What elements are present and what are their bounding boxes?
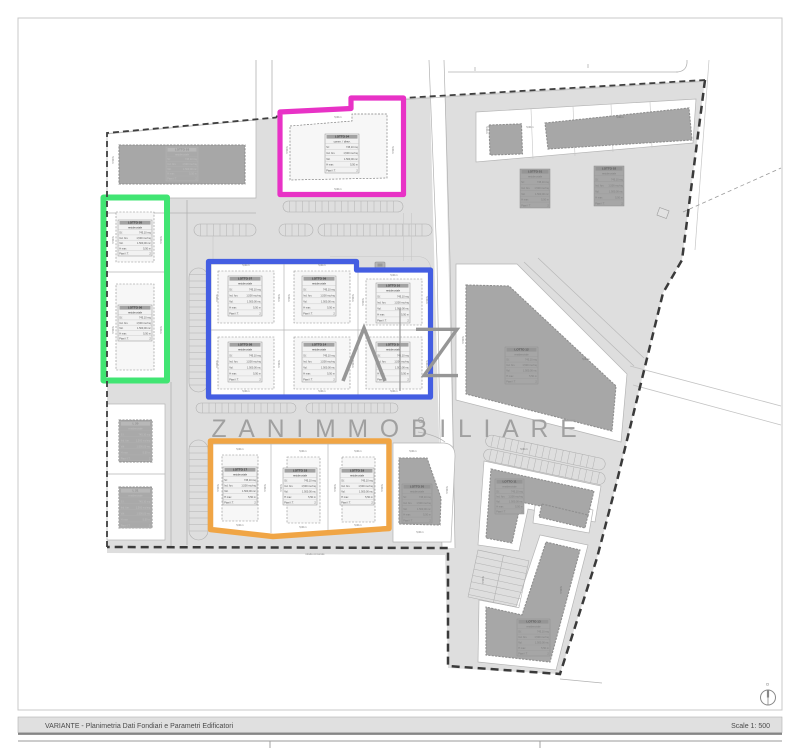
svg-text:Piani f.T.: Piani f.T. [303, 313, 313, 316]
svg-text:1.500,00 mc: 1.500,00 mc [242, 490, 257, 493]
svg-text:residenziale: residenziale [128, 310, 143, 314]
svg-text:Piani f.T.: Piani f.T. [377, 320, 387, 323]
svg-text:Vol.: Vol. [595, 190, 599, 193]
svg-text:Piani f.T.: Piani f.T. [303, 379, 313, 382]
svg-text:Piani f.T.: Piani f.T. [496, 511, 506, 514]
svg-text:S.f.: S.f. [595, 178, 599, 181]
svg-text:S.f.: S.f. [224, 479, 228, 482]
svg-text:LOTTO 01: LOTTO 01 [528, 170, 543, 174]
svg-text:Ind. fon.: Ind. fon. [284, 485, 293, 488]
svg-text:1.500,00 mc: 1.500,00 mc [137, 445, 152, 448]
svg-text:LOTTO 20: LOTTO 20 [410, 485, 425, 489]
svg-text:Piani f.T.: Piani f.T. [326, 170, 336, 173]
svg-text:H max: H max [303, 373, 311, 376]
svg-text:5,50 m: 5,50 m [143, 247, 151, 250]
svg-text:LOTTO 09: LOTTO 09 [312, 277, 327, 281]
svg-text:5,50 m: 5,50 m [253, 307, 261, 310]
svg-text:1,500 mc/mq: 1,500 mc/mq [246, 294, 261, 297]
svg-text:5,00 m: 5,00 m [279, 484, 282, 491]
svg-text:1.500,00 mc: 1.500,00 mc [609, 190, 624, 193]
svg-text:S.f.: S.f. [518, 631, 522, 634]
svg-text:745,10 mq: 745,10 mq [323, 354, 335, 357]
svg-text:1,500 mc/mq: 1,500 mc/mq [534, 636, 549, 639]
svg-text:residenziale: residenziale [386, 288, 401, 292]
svg-text:LOTTO 16: LOTTO 16 [386, 343, 401, 347]
svg-text:residenziale: residenziale [233, 472, 248, 476]
svg-text:residenziale: residenziale [238, 347, 253, 351]
svg-text:1,500 mc/mq: 1,500 mc/mq [522, 364, 537, 367]
svg-text:Vol.: Vol. [326, 158, 330, 161]
svg-text:5,00 m: 5,00 m [111, 156, 114, 163]
svg-text:5,00 m: 5,00 m [354, 524, 361, 527]
svg-text:1,500 mc/mq: 1,500 mc/mq [136, 322, 151, 325]
svg-text:5,00 m: 5,00 m [242, 390, 249, 393]
svg-text:H max: H max [284, 496, 292, 499]
svg-text:Ind. fon.: Ind. fon. [224, 485, 233, 488]
svg-text:5,00 m: 5,00 m [485, 126, 488, 133]
svg-text:745,10 mq: 745,10 mq [249, 354, 261, 357]
svg-text:S.f.: S.f. [167, 158, 171, 161]
svg-text:5,50 m: 5,50 m [308, 496, 316, 499]
svg-text:S.f.: S.f. [341, 480, 345, 483]
svg-text:1,500 mc/mq: 1,500 mc/mq [416, 502, 431, 505]
svg-text:residenziale: residenziale [514, 352, 529, 356]
svg-text:H max: H max [167, 173, 175, 176]
svg-text:L 20: L 20 [133, 422, 139, 426]
svg-text:5,00 m: 5,00 m [277, 294, 280, 301]
svg-text:Vol.: Vol. [229, 300, 233, 303]
svg-text:1.500,00 mc: 1.500,00 mc [509, 500, 524, 503]
svg-text:1,500 mc/mq: 1,500 mc/mq [182, 163, 197, 166]
svg-text:residenziale: residenziale [528, 174, 543, 178]
svg-text:H max: H max [303, 307, 311, 310]
svg-text:Ind. fon.: Ind. fon. [496, 495, 505, 498]
svg-text:1.500,00 mc: 1.500,00 mc [523, 370, 538, 373]
svg-text:Piani f.T.: Piani f.T. [224, 502, 234, 505]
svg-text:Ind. fon.: Ind. fon. [229, 360, 238, 363]
svg-text:5,50 m: 5,50 m [401, 314, 409, 317]
svg-text:ZANIMMOBILIARE: ZANIMMOBILIARE [212, 415, 589, 443]
svg-text:1.500,00 mc: 1.500,00 mc [183, 168, 198, 171]
svg-text:5,00 m: 5,00 m [351, 294, 354, 301]
svg-text:S.f.: S.f. [496, 490, 500, 493]
svg-text:1,500 mc/mq: 1,500 mc/mq [136, 506, 151, 509]
svg-text:745,10 mq: 745,10 mq [346, 146, 358, 149]
svg-text:H max: H max [377, 314, 385, 317]
svg-text:LOTTO 19: LOTTO 19 [350, 469, 365, 473]
svg-text:LOTTO 18: LOTTO 18 [293, 469, 308, 473]
svg-text:Ind. fon.: Ind. fon. [119, 237, 128, 240]
svg-text:Ind. fon.: Ind. fon. [229, 294, 238, 297]
svg-text:5,50 m: 5,50 m [423, 514, 431, 517]
svg-text:5,00 m: 5,00 m [111, 236, 114, 243]
svg-text:S.f.: S.f. [377, 354, 381, 357]
svg-text:residenziale: residenziale [350, 473, 365, 477]
svg-text:Piani f.T.: Piani f.T. [521, 205, 531, 208]
svg-text:5,00 m: 5,00 m [159, 236, 162, 243]
svg-text:745,10 mq: 745,10 mq [525, 359, 537, 362]
svg-text:Piani f.T.: Piani f.T. [229, 379, 239, 382]
svg-text:1,500 mc/mq: 1,500 mc/mq [246, 360, 261, 363]
svg-text:Vol.: Vol. [224, 490, 228, 493]
svg-text:Vol.: Vol. [506, 370, 510, 373]
svg-text:745,10 mq: 745,10 mq [397, 295, 409, 298]
svg-text:LOTTO 17: LOTTO 17 [233, 468, 248, 472]
svg-text:LOTTO 14: LOTTO 14 [312, 343, 327, 347]
svg-text:5,50 m: 5,50 m [515, 506, 523, 509]
svg-text:1.500,00 mc: 1.500,00 mc [395, 366, 410, 369]
svg-text:5,00 m: 5,00 m [242, 264, 249, 267]
svg-text:L 21: L 21 [133, 489, 139, 493]
svg-text:1,500 mc/mq: 1,500 mc/mq [301, 485, 316, 488]
svg-text:5,00 m: 5,00 m [263, 484, 266, 491]
svg-text:1.500,00 mc: 1.500,00 mc [321, 366, 336, 369]
svg-text:5,00 m: 5,00 m [461, 336, 464, 343]
svg-text:1,500 mc/mq: 1,500 mc/mq [608, 184, 623, 187]
svg-text:1,500 mc/mq: 1,500 mc/mq [394, 360, 409, 363]
svg-text:5,50 m: 5,50 m [541, 647, 549, 650]
svg-text:5,50 m: 5,50 m [248, 496, 256, 499]
svg-text:residenziale: residenziale [175, 152, 190, 156]
svg-text:S.f.: S.f. [303, 354, 307, 357]
svg-text:5,00 m: 5,00 m [216, 484, 219, 491]
svg-text:1.500,00 mc: 1.500,00 mc [535, 193, 550, 196]
svg-text:5,00 m: 5,00 m [287, 294, 290, 301]
svg-text:5,50 m: 5,50 m [327, 373, 335, 376]
svg-text:residenziale: residenziale [526, 624, 541, 628]
svg-text:S.f.: S.f. [303, 288, 307, 291]
svg-text:Ind. fon.: Ind. fon. [167, 163, 176, 166]
svg-text:LOTTO 04: LOTTO 04 [335, 135, 350, 139]
svg-text:LOTTO 02: LOTTO 02 [602, 167, 617, 171]
svg-text:residenziale: residenziale [312, 281, 327, 285]
svg-text:5,00 m: 5,00 m [318, 390, 325, 393]
svg-text:5,00 m: 5,00 m [236, 448, 243, 451]
svg-text:5,00 m: 5,00 m [354, 450, 361, 453]
svg-text:5,00 m: 5,00 m [361, 298, 364, 305]
svg-text:Vol.: Vol. [496, 500, 500, 503]
svg-text:5,50 m: 5,50 m [401, 373, 409, 376]
svg-text:Piani f.T.: Piani f.T. [167, 178, 177, 181]
svg-text:1.500,00 mc: 1.500,00 mc [302, 491, 317, 494]
svg-text:H max: H max [119, 247, 127, 250]
svg-text:1.500,00 mc: 1.500,00 mc [417, 508, 432, 511]
svg-text:1.500,00 mc: 1.500,00 mc [247, 300, 262, 303]
svg-text:745,10 mq: 745,10 mq [138, 500, 150, 503]
svg-text:Vol.: Vol. [303, 366, 307, 369]
svg-text:LOTTO 13: LOTTO 13 [526, 620, 541, 624]
svg-text:5,00 m: 5,00 m [299, 526, 306, 529]
svg-text:Ind. fon.: Ind. fon. [303, 360, 312, 363]
svg-text:Vol.: Vol. [303, 300, 307, 303]
svg-text:Vol.: Vol. [284, 491, 288, 494]
svg-text:H max: H max [518, 647, 526, 650]
svg-text:Vol.: Vol. [518, 642, 522, 645]
svg-text:H max: H max [595, 197, 603, 200]
svg-text:LOTTO 08: LOTTO 08 [238, 343, 253, 347]
svg-text:5,50 m: 5,50 m [529, 375, 537, 378]
svg-text:Piani f.T.: Piani f.T. [121, 525, 131, 528]
svg-text:1.500,00 mc: 1.500,00 mc [344, 158, 359, 161]
svg-text:5,00 m: 5,00 m [481, 576, 484, 583]
svg-text:5,00 m: 5,00 m [333, 484, 336, 491]
svg-text:LOTTO 05: LOTTO 05 [128, 221, 143, 225]
svg-text:H max: H max [506, 375, 514, 378]
svg-text:H max: H max [119, 332, 127, 335]
svg-text:5,00 m: 5,00 m [416, 531, 423, 534]
svg-text:745,10 mq: 745,10 mq [249, 288, 261, 291]
svg-text:LOTTO 06: LOTTO 06 [128, 306, 143, 310]
svg-text:1,500 mc/mq: 1,500 mc/mq [241, 485, 256, 488]
svg-text:S.f.: S.f. [284, 480, 288, 483]
svg-text:5,00 m: 5,00 m [391, 146, 394, 153]
svg-text:Ind. fon.: Ind. fon. [403, 502, 412, 505]
svg-text:5,50 m: 5,50 m [615, 197, 623, 200]
svg-text:S.f.: S.f. [506, 359, 510, 362]
svg-text:S.f.: S.f. [229, 288, 233, 291]
svg-text:Piani f.T.: Piani f.T. [229, 313, 239, 316]
svg-text:Vol.: Vol. [121, 445, 125, 448]
svg-text:5,00 m: 5,00 m [285, 146, 288, 153]
svg-text:S.f.: S.f. [377, 295, 381, 298]
svg-text:Ind. fon.: Ind. fon. [377, 301, 386, 304]
svg-text:residenziale: residenziale [128, 493, 143, 497]
svg-text:S.f.: S.f. [121, 433, 125, 436]
svg-text:1.500,00 mc: 1.500,00 mc [247, 366, 262, 369]
svg-text:1.500,00 mc: 1.500,00 mc [137, 512, 152, 515]
svg-text:745,10 mq: 745,10 mq [139, 317, 151, 320]
svg-text:H max: H max [496, 506, 504, 509]
svg-text:5,00 m: 5,00 m [425, 296, 428, 303]
svg-text:residenziale: residenziale [502, 484, 517, 488]
svg-text:745,10 mq: 745,10 mq [397, 354, 409, 357]
svg-text:residenziale: residenziale [128, 225, 143, 229]
svg-text:LOTTO 03: LOTTO 03 [175, 148, 190, 152]
svg-text:1,500 mc/mq: 1,500 mc/mq [320, 360, 335, 363]
svg-text:Ind. fon.: Ind. fon. [341, 485, 350, 488]
svg-text:5,00 m: 5,00 m [425, 360, 428, 367]
svg-text:Ind. fon.: Ind. fon. [303, 294, 312, 297]
svg-text:strada comunale: strada comunale [305, 552, 325, 556]
svg-text:Piani f.T.: Piani f.T. [341, 502, 351, 505]
svg-text:Piani f.T.: Piani f.T. [119, 253, 129, 256]
svg-text:1.500,00 mc: 1.500,00 mc [321, 300, 336, 303]
svg-text:5,50 m: 5,50 m [350, 164, 358, 167]
svg-text:1,500 mc/mq: 1,500 mc/mq [394, 301, 409, 304]
svg-text:745,10 mq: 745,10 mq [419, 496, 431, 499]
svg-text:745,10 mq: 745,10 mq [304, 480, 316, 483]
svg-text:Vol.: Vol. [119, 242, 123, 245]
svg-text:1,500 mc/mq: 1,500 mc/mq [136, 439, 151, 442]
svg-text:residenziale: residenziale [386, 347, 401, 351]
svg-text:LOTTO 10: LOTTO 10 [386, 284, 401, 288]
svg-text:Piani f.T.: Piani f.T. [403, 520, 413, 523]
svg-text:1.500,00 mc: 1.500,00 mc [535, 642, 550, 645]
svg-text:Vol.: Vol. [377, 307, 381, 310]
svg-text:H max: H max [521, 199, 529, 202]
svg-text:5,00 m: 5,00 m [159, 326, 162, 333]
svg-text:5,00 m: 5,00 m [215, 294, 218, 301]
svg-text:S.f.: S.f. [121, 500, 125, 503]
svg-text:Ind. fon.: Ind. fon. [121, 506, 130, 509]
svg-text:5,00 m: 5,00 m [409, 450, 416, 453]
svg-text:5,00 m: 5,00 m [380, 484, 383, 491]
svg-text:5,00 m: 5,00 m [111, 326, 114, 333]
svg-text:745,10 mq: 745,10 mq [323, 288, 335, 291]
svg-text:5,00 m: 5,00 m [215, 360, 218, 367]
svg-text:Ind. fon.: Ind. fon. [595, 184, 604, 187]
svg-text:Piani f.T.: Piani f.T. [518, 653, 528, 656]
svg-text:residenziale: residenziale [293, 473, 308, 477]
svg-text:H max: H max [341, 496, 349, 499]
svg-text:5,50 m: 5,50 m [189, 173, 197, 176]
svg-text:5,00 m: 5,00 m [582, 358, 589, 361]
svg-text:S.f.: S.f. [326, 146, 330, 149]
svg-text:H max: H max [224, 496, 232, 499]
svg-text:Vol.: Vol. [229, 366, 233, 369]
svg-text:Ind. fon.: Ind. fon. [119, 322, 128, 325]
svg-text:1.500,00 mc: 1.500,00 mc [137, 242, 152, 245]
svg-text:745,10 mq: 745,10 mq [139, 232, 151, 235]
svg-text:5,00 m: 5,00 m [616, 116, 623, 119]
svg-text:5,00 m: 5,00 m [334, 116, 341, 119]
svg-text:Vol.: Vol. [403, 508, 407, 511]
svg-text:H max: H max [121, 519, 129, 522]
svg-text:H max: H max [326, 164, 334, 167]
svg-text:745,10 mq: 745,10 mq [537, 631, 549, 634]
svg-text:Ind. fon.: Ind. fon. [506, 364, 515, 367]
svg-text:LOTTO 11: LOTTO 11 [502, 480, 516, 484]
svg-text:5,50 m: 5,50 m [365, 496, 373, 499]
svg-text:5,50 m: 5,50 m [253, 373, 261, 376]
svg-text:1.500,00 mc: 1.500,00 mc [137, 327, 152, 330]
svg-text:S.f.: S.f. [521, 181, 525, 184]
svg-text:S.f.: S.f. [403, 496, 407, 499]
svg-text:Piani f.T.: Piani f.T. [284, 502, 294, 505]
svg-text:LOTTO 12: LOTTO 12 [514, 348, 529, 352]
svg-text:745,10 mq: 745,10 mq [537, 181, 549, 184]
svg-text:745,10 mq: 745,10 mq [511, 490, 523, 493]
svg-text:1,500 mc/mq: 1,500 mc/mq [343, 152, 358, 155]
svg-text:745,10 mq: 745,10 mq [138, 433, 150, 436]
svg-text:Piani f.T.: Piani f.T. [121, 458, 131, 461]
svg-text:5,00 m: 5,00 m [236, 524, 243, 527]
svg-text:5,50 m: 5,50 m [541, 199, 549, 202]
svg-text:1,500 mc/mq: 1,500 mc/mq [358, 485, 373, 488]
svg-text:Vol.: Vol. [121, 512, 125, 515]
svg-text:5,00 m: 5,00 m [559, 586, 562, 593]
svg-text:S.f.: S.f. [119, 317, 123, 320]
svg-text:5,00 m: 5,00 m [390, 390, 397, 393]
svg-text:residenziale: residenziale [410, 489, 425, 493]
svg-text:H max: H max [229, 307, 237, 310]
svg-text:H max: H max [121, 452, 129, 455]
svg-text:1.500,00 mc: 1.500,00 mc [395, 307, 410, 310]
svg-text:745,10 mq: 745,10 mq [185, 158, 197, 161]
svg-text:Piani f.T.: Piani f.T. [506, 381, 516, 384]
svg-text:5,00 m: 5,00 m [334, 188, 341, 191]
svg-text:5,00 m: 5,00 m [520, 448, 527, 451]
svg-text:745,10 mq: 745,10 mq [244, 479, 256, 482]
svg-text:1,500 mc/mq: 1,500 mc/mq [136, 237, 151, 240]
svg-text:residenziale: residenziale [238, 281, 253, 285]
svg-text:H max: H max [403, 514, 411, 517]
svg-text:H max: H max [229, 373, 237, 376]
svg-text:Ind. fon.: Ind. fon. [518, 636, 527, 639]
svg-text:1.500,00 mc: 1.500,00 mc [359, 491, 374, 494]
svg-text:5,00 m: 5,00 m [526, 126, 533, 129]
svg-text:Scale 1: 500: Scale 1: 500 [731, 723, 770, 730]
svg-text:comm. / direz.: comm. / direz. [334, 139, 351, 143]
svg-text:residenziale: residenziale [602, 171, 617, 175]
svg-text:5,50 m: 5,50 m [143, 332, 151, 335]
svg-text:VARIANTE - Planimetria Dati Fo: VARIANTE - Planimetria Dati Fondiari e P… [45, 723, 234, 730]
svg-text:745,10 mq: 745,10 mq [361, 480, 373, 483]
svg-text:5,50 m: 5,50 m [143, 452, 151, 455]
svg-text:1,500 mc/mq: 1,500 mc/mq [508, 495, 523, 498]
svg-text:Vol.: Vol. [521, 193, 525, 196]
svg-text:LOTTO 07: LOTTO 07 [238, 277, 253, 281]
svg-text:Ind. fon.: Ind. fon. [121, 439, 130, 442]
svg-text:5,50 m: 5,50 m [327, 307, 335, 310]
svg-text:5,00 m: 5,00 m [277, 360, 280, 367]
svg-text:residenziale: residenziale [312, 347, 327, 351]
svg-text:5,00 m: 5,00 m [445, 486, 448, 493]
svg-text:S.f.: S.f. [229, 354, 233, 357]
svg-text:residenziale: residenziale [128, 426, 143, 430]
svg-text:Vol.: Vol. [341, 491, 345, 494]
svg-text:5,50 m: 5,50 m [143, 519, 151, 522]
svg-text:Ind. fon.: Ind. fon. [521, 187, 530, 190]
svg-text:Ind. fon.: Ind. fon. [326, 152, 335, 155]
svg-text:Vol.: Vol. [167, 168, 171, 171]
svg-text:1,500 mc/mq: 1,500 mc/mq [534, 187, 549, 190]
svg-text:Vol.: Vol. [119, 327, 123, 330]
svg-text:Piani f.T.: Piani f.T. [595, 203, 605, 206]
svg-text:5,00 m: 5,00 m [318, 264, 325, 267]
svg-text:S.f.: S.f. [119, 232, 123, 235]
svg-text:Piani f.T.: Piani f.T. [119, 338, 129, 341]
svg-text:5,00 m: 5,00 m [390, 274, 397, 277]
svg-text:1,500 mc/mq: 1,500 mc/mq [320, 294, 335, 297]
svg-text:5,00 m: 5,00 m [299, 450, 306, 453]
svg-text:745,10 mq: 745,10 mq [611, 178, 623, 181]
